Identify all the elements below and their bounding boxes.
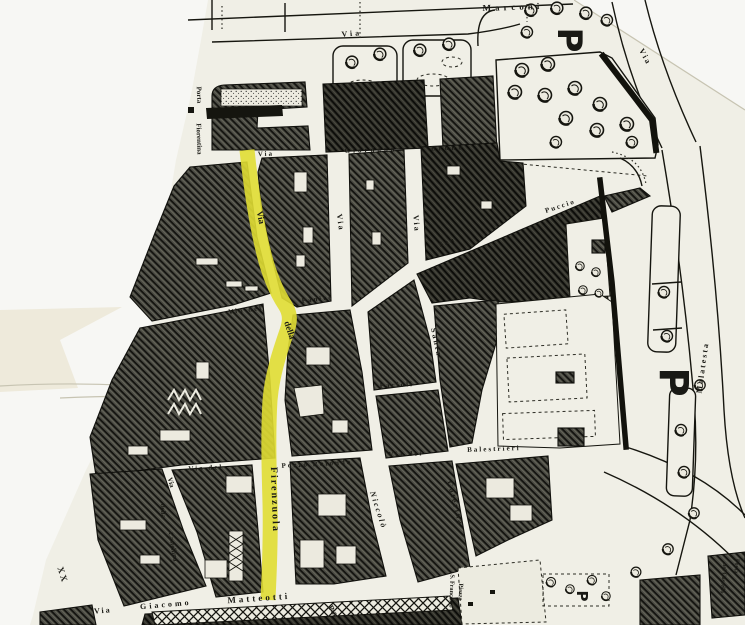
tree-icon bbox=[551, 2, 563, 14]
building-footprint bbox=[372, 232, 381, 245]
tree-icon bbox=[521, 26, 532, 37]
tree-icon bbox=[546, 577, 555, 586]
building-footprint bbox=[318, 494, 346, 516]
tree-icon bbox=[631, 567, 641, 577]
street-label-bruno: Bruno bbox=[431, 143, 465, 152]
tree-icon bbox=[374, 48, 386, 60]
building-footprint bbox=[486, 478, 514, 498]
tree-icon bbox=[689, 508, 699, 518]
tree-icon bbox=[566, 585, 574, 593]
building-footprint bbox=[120, 520, 146, 530]
parking-icon: P bbox=[549, 28, 589, 53]
street-label-castellina: della bbox=[159, 504, 168, 519]
tree-icon bbox=[601, 14, 612, 25]
street-label-via: Via bbox=[341, 28, 362, 39]
city-block bbox=[556, 372, 574, 383]
monument bbox=[468, 602, 473, 606]
city-block bbox=[440, 76, 497, 150]
building-footprint bbox=[226, 476, 252, 493]
building-footprint bbox=[196, 258, 218, 265]
route-label-firenzuola: Firenzuola bbox=[268, 467, 281, 533]
tree-icon bbox=[579, 286, 587, 294]
monument bbox=[490, 590, 495, 594]
building-footprint bbox=[196, 362, 209, 379]
tree-icon bbox=[443, 38, 455, 50]
tree-icon bbox=[580, 7, 592, 19]
city-block bbox=[323, 80, 428, 152]
stippled-square bbox=[221, 89, 302, 106]
tree-icon bbox=[593, 98, 606, 111]
building-footprint bbox=[245, 286, 258, 291]
building-footprint bbox=[481, 201, 492, 209]
city-block bbox=[640, 575, 700, 625]
gate-label-porta-castello: Porta bbox=[732, 558, 740, 573]
tree-icon bbox=[559, 112, 572, 125]
tree-icon bbox=[663, 544, 673, 554]
tree-icon bbox=[550, 136, 561, 147]
map-canvas: Marconi Via Via Via Giordano Bruno Porta… bbox=[0, 0, 745, 625]
tree-icon bbox=[515, 64, 528, 77]
street-label-via-dei: Via dei bbox=[388, 449, 423, 458]
piazza-label: S. Francesco bbox=[447, 574, 455, 608]
building-footprint bbox=[160, 430, 190, 441]
tree-icon bbox=[678, 466, 689, 477]
tree-icon bbox=[568, 82, 581, 95]
parking-icon: P bbox=[650, 367, 696, 396]
parking-bay bbox=[647, 206, 680, 353]
building-footprint bbox=[300, 540, 324, 568]
street-label-via: Via bbox=[94, 605, 112, 616]
tree-icon bbox=[658, 286, 669, 297]
city-block bbox=[376, 390, 448, 458]
building-footprint bbox=[140, 555, 160, 564]
street-label-via: Via bbox=[411, 215, 422, 233]
tree-icon bbox=[602, 592, 610, 600]
scanned-street-map: Marconi Via Via Via Giordano Bruno Porta… bbox=[0, 0, 745, 625]
city-gate bbox=[188, 107, 194, 113]
building-footprint bbox=[366, 180, 374, 190]
tree-icon bbox=[541, 58, 554, 71]
tree-icon bbox=[587, 575, 596, 584]
tree-icon bbox=[538, 89, 551, 102]
piazza-label: Piazza bbox=[457, 583, 465, 600]
building-footprint bbox=[306, 347, 330, 365]
building-footprint bbox=[296, 255, 305, 267]
piazza bbox=[458, 560, 546, 624]
tree-icon bbox=[595, 289, 603, 297]
tree-icon bbox=[508, 86, 521, 99]
tree-icon bbox=[592, 268, 600, 276]
tree-icon bbox=[590, 124, 603, 137]
building-footprint bbox=[510, 505, 532, 521]
tree-icon bbox=[620, 118, 633, 131]
city-block bbox=[558, 428, 584, 446]
monastery-courtyard bbox=[496, 294, 620, 448]
gate-label-fiorentina: Fiorentina bbox=[194, 123, 203, 155]
building-footprint bbox=[332, 420, 348, 433]
tree-icon bbox=[414, 44, 426, 56]
gate-label-porta: Porta bbox=[195, 86, 204, 103]
parking-bay bbox=[666, 388, 696, 497]
building-footprint bbox=[205, 560, 227, 578]
arcade-strip bbox=[229, 531, 243, 581]
building-footprint bbox=[336, 546, 356, 564]
building-footprint bbox=[303, 227, 313, 243]
street-label-via: Via bbox=[258, 150, 275, 159]
building-footprint bbox=[294, 172, 307, 192]
city-block bbox=[592, 240, 605, 253]
tree-icon bbox=[661, 330, 672, 341]
building-footprint bbox=[447, 166, 460, 175]
street-label-marconi: Marconi bbox=[482, 1, 543, 13]
tree-icon bbox=[576, 262, 584, 270]
tree-icon bbox=[346, 56, 358, 68]
building-footprint bbox=[128, 446, 148, 455]
building-footprint bbox=[226, 281, 242, 287]
tree-icon bbox=[626, 136, 637, 147]
tree-icon bbox=[675, 424, 686, 435]
parking-icon: P bbox=[573, 591, 591, 602]
